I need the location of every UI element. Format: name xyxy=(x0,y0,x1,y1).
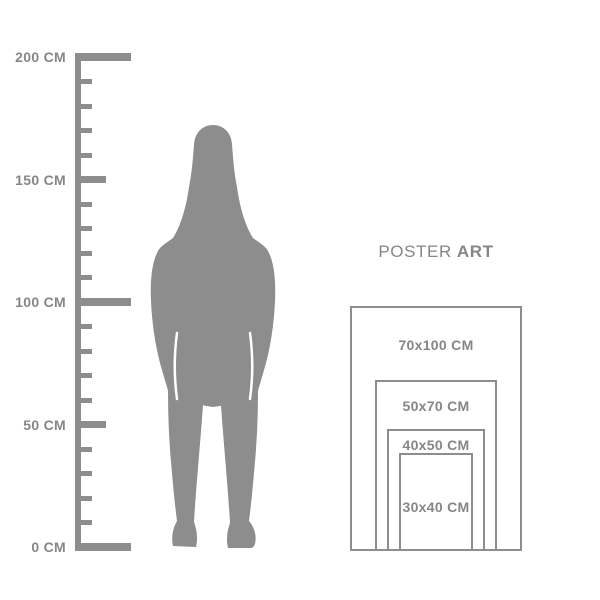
ruler-tick-170cm xyxy=(75,128,92,133)
ruler-tick-40cm xyxy=(75,447,92,452)
ruler-label-100cm: 100 CM xyxy=(0,293,66,311)
brand-title: POSTERART xyxy=(336,242,536,262)
ruler-tick-20cm xyxy=(75,496,92,501)
ruler-tick-180cm xyxy=(75,104,92,109)
poster-size-label-30x40: 30x40 CM xyxy=(356,499,516,515)
ruler-tick-200cm xyxy=(75,53,131,61)
ruler-tick-70cm xyxy=(75,373,92,378)
ruler-tick-140cm xyxy=(75,202,92,207)
ruler-tick-50cm xyxy=(75,421,106,428)
ruler-tick-160cm xyxy=(75,153,92,158)
brand-title-regular: POSTER xyxy=(378,242,452,261)
ruler-tick-10cm xyxy=(75,520,92,525)
ruler-tick-90cm xyxy=(75,324,92,329)
ruler-label-150cm: 150 CM xyxy=(0,171,66,189)
ruler-tick-130cm xyxy=(75,226,92,231)
ruler-tick-120cm xyxy=(75,251,92,256)
ruler-tick-100cm xyxy=(75,298,131,306)
ruler-tick-190cm xyxy=(75,79,92,84)
poster-size-label-70x100: 70x100 CM xyxy=(356,337,516,353)
brand-title-bold: ART xyxy=(457,242,494,261)
ruler-label-50cm: 50 CM xyxy=(0,416,66,434)
woman-silhouette xyxy=(150,125,276,550)
poster-size-guide: 200 CM150 CM100 CM50 CM0 CM POSTERART 70… xyxy=(0,0,600,600)
ruler-label-0cm: 0 CM xyxy=(0,538,66,556)
ruler-tick-60cm xyxy=(75,398,92,403)
silhouette-left-leg xyxy=(168,353,205,547)
ruler-tick-150cm xyxy=(75,176,106,183)
ruler-label-200cm: 200 CM xyxy=(0,48,66,66)
poster-size-label-40x50: 40x50 CM xyxy=(356,437,516,453)
ruler-tick-80cm xyxy=(75,349,92,354)
ruler-tick-0cm xyxy=(75,543,131,551)
poster-size-label-50x70: 50x70 CM xyxy=(356,398,516,414)
ruler-tick-110cm xyxy=(75,275,92,280)
ruler-tick-30cm xyxy=(75,471,92,476)
